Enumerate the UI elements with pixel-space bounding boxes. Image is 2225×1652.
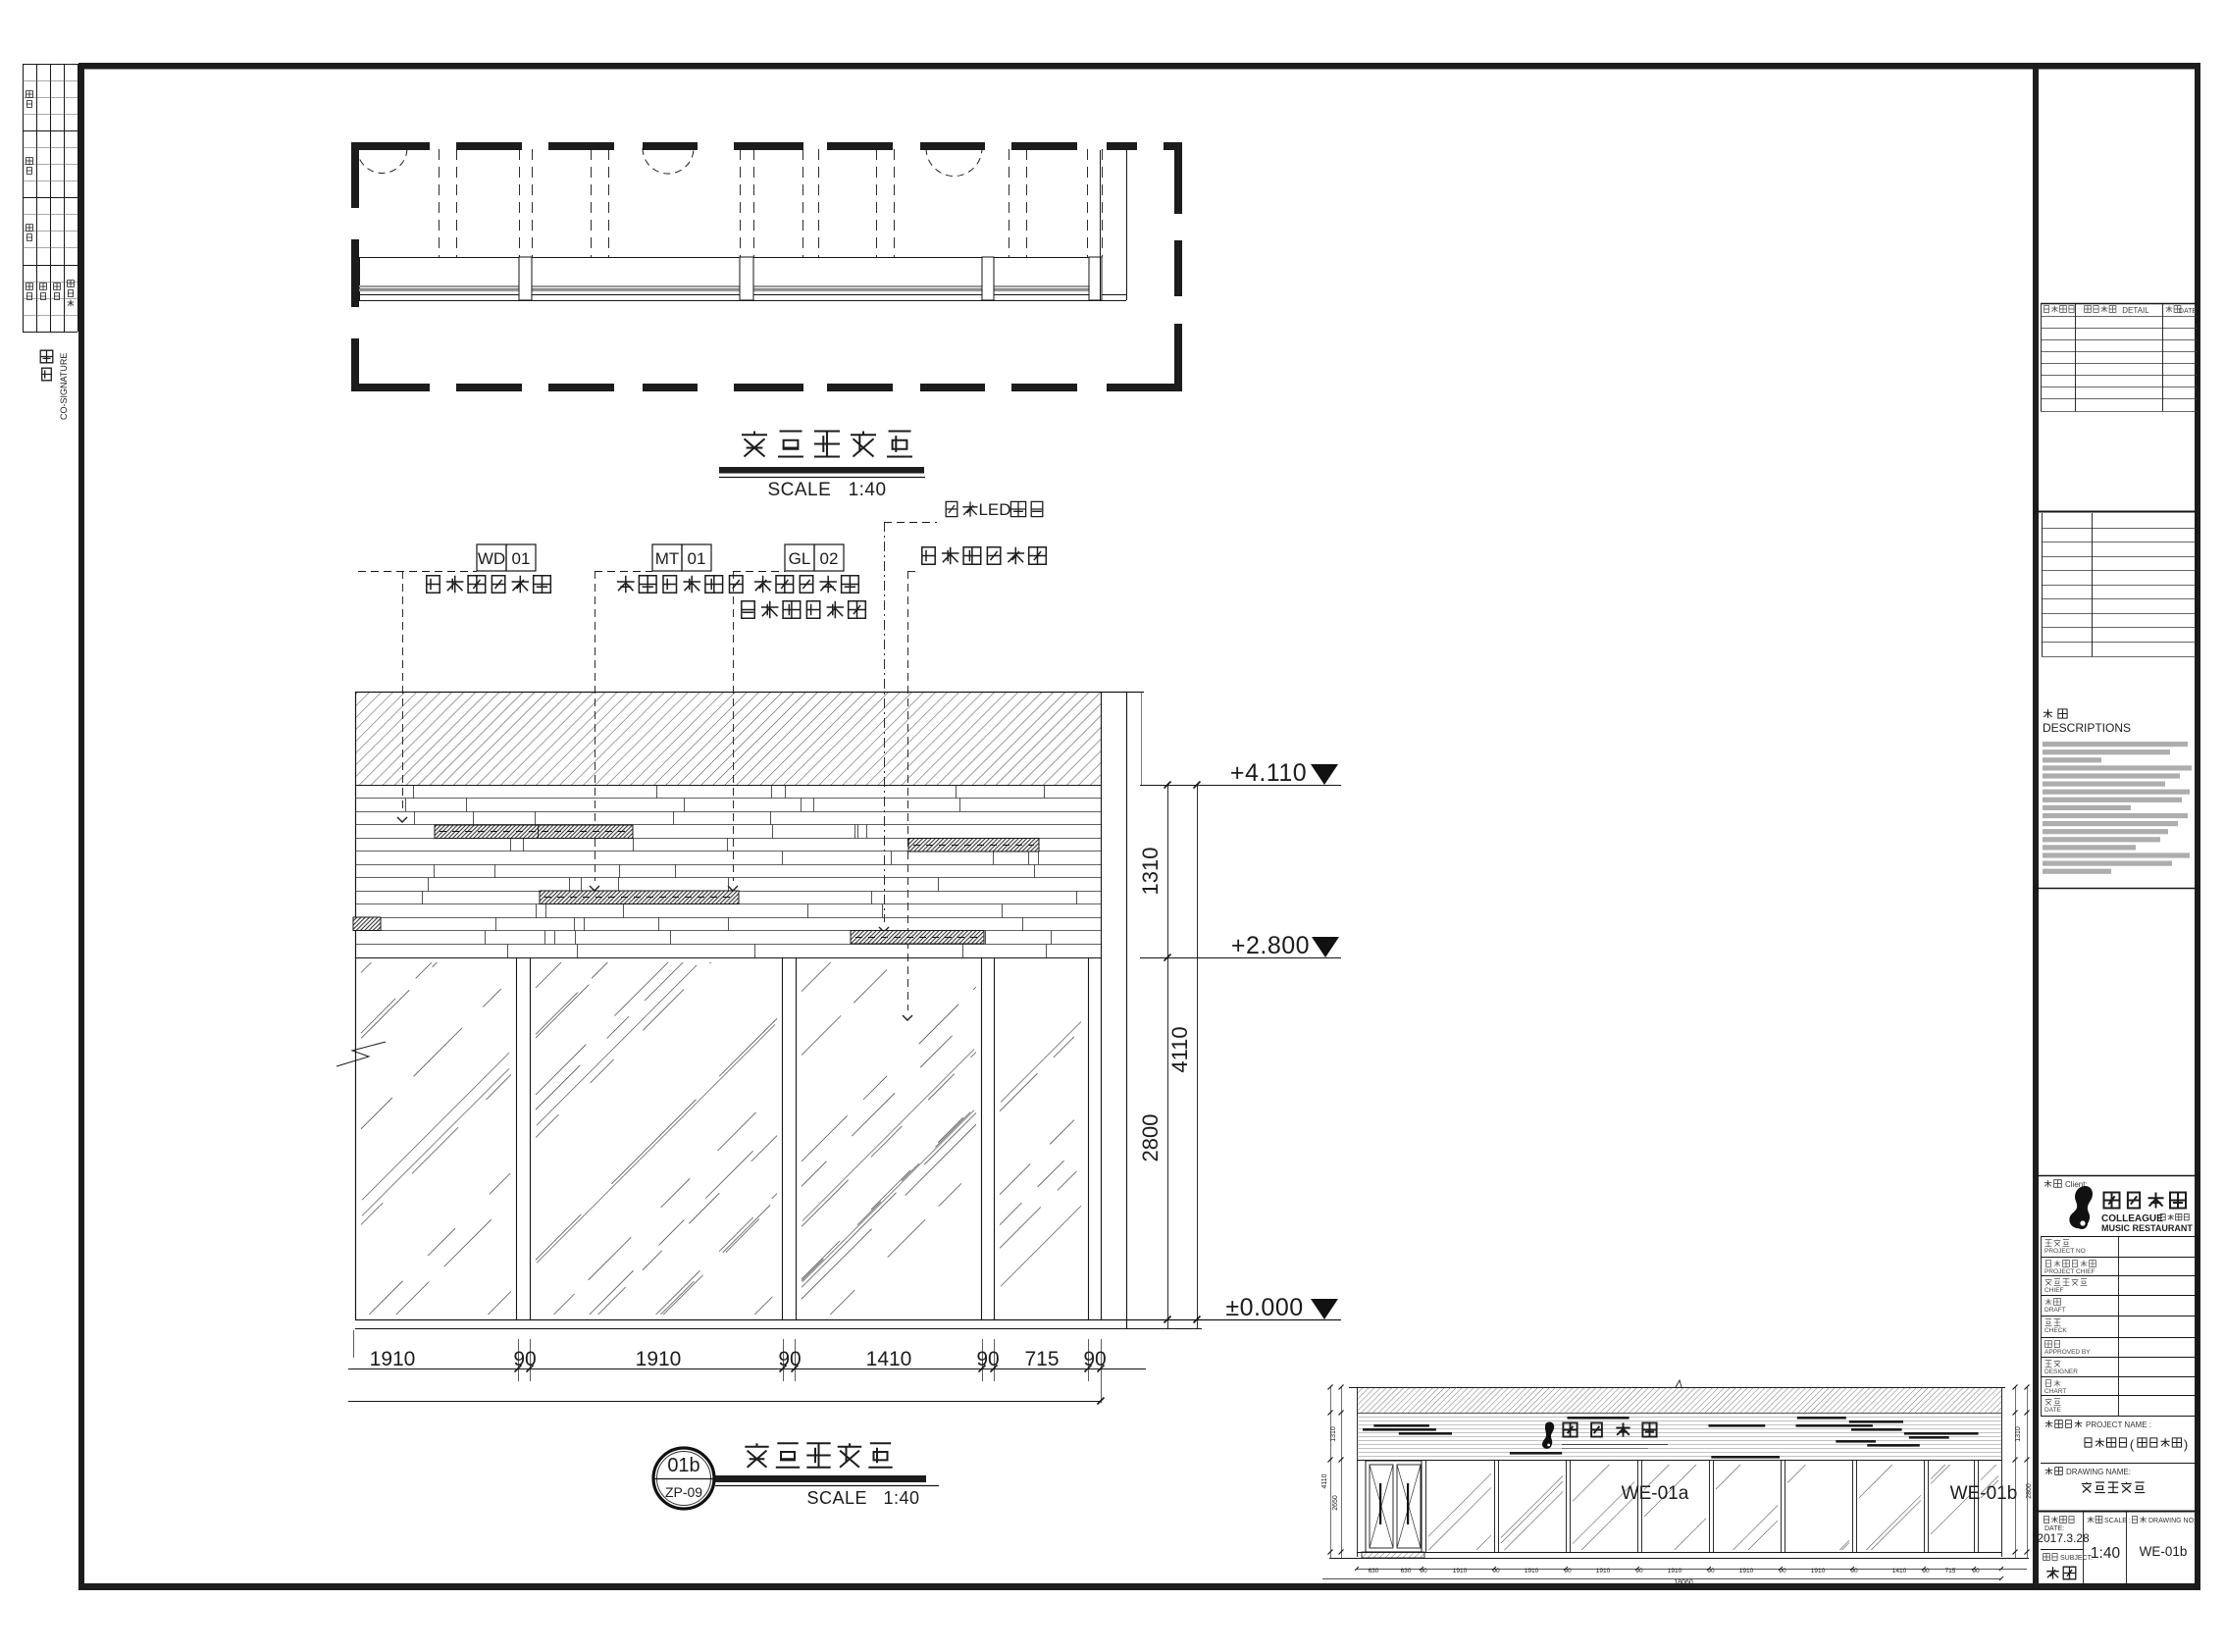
svg-text:90: 90 (976, 1348, 999, 1370)
svg-text:WE-01b: WE-01b (1950, 1483, 2018, 1504)
svg-text:1910: 1910 (1525, 1568, 1539, 1575)
svg-text:DRAFT: DRAFT (2044, 1307, 2066, 1314)
svg-text:2650: 2650 (1332, 1495, 1339, 1511)
svg-text:ZP-09: ZP-09 (665, 1484, 702, 1500)
svg-text:01: 01 (512, 549, 531, 568)
svg-text:1910: 1910 (636, 1348, 682, 1370)
svg-text:01b: 01b (667, 1455, 699, 1476)
svg-text:DATE: DATE (2179, 308, 2197, 315)
svg-text:DRAWING NO:: DRAWING NO: (2148, 1518, 2196, 1524)
svg-text:SCALE :: SCALE : (2104, 1518, 2131, 1524)
svg-text:SUBJECT:: SUBJECT: (2060, 1555, 2093, 1562)
svg-text:CHECK: CHECK (2044, 1327, 2067, 1334)
svg-text:4110: 4110 (1167, 1026, 1192, 1072)
svg-text:1910: 1910 (1811, 1568, 1826, 1575)
svg-text:90: 90 (513, 1348, 536, 1370)
svg-text:90: 90 (1083, 1348, 1106, 1370)
svg-text:2017.3.28: 2017.3.28 (2037, 1531, 2090, 1545)
svg-text:DRAWING NAME:: DRAWING NAME: (2066, 1468, 2131, 1476)
svg-text:±0.000: ±0.000 (1225, 1294, 1303, 1321)
svg-text:90: 90 (1850, 1568, 1858, 1575)
svg-text:1:40: 1:40 (2091, 1545, 2121, 1562)
svg-text:LED: LED (978, 500, 1010, 519)
svg-text:GL: GL (789, 549, 811, 568)
svg-text:90: 90 (1635, 1568, 1643, 1575)
svg-text:WE-01a: WE-01a (1622, 1483, 1689, 1504)
svg-text:1910: 1910 (1739, 1568, 1754, 1575)
svg-text:CO-SIGNATURE: CO-SIGNATURE (59, 353, 69, 420)
svg-text:90: 90 (1707, 1568, 1715, 1575)
svg-text:90: 90 (1420, 1568, 1427, 1575)
svg-text:1910: 1910 (1668, 1568, 1682, 1575)
svg-text:WE-01b: WE-01b (2140, 1544, 2188, 1559)
svg-text:DESCRIPTIONS: DESCRIPTIONS (2043, 721, 2131, 735)
svg-text:+4.110: +4.110 (1230, 759, 1307, 787)
svg-text:1310: 1310 (1330, 1426, 1337, 1442)
svg-text:4110: 4110 (1321, 1473, 1328, 1488)
svg-text:DESIGNER: DESIGNER (2044, 1368, 2078, 1375)
svg-text:715: 715 (1945, 1568, 1956, 1575)
svg-text:WD: WD (478, 549, 505, 568)
svg-text:1910: 1910 (1453, 1568, 1468, 1575)
svg-text:715: 715 (1024, 1348, 1059, 1370)
svg-text:1310: 1310 (2015, 1426, 2022, 1442)
svg-text:1410: 1410 (1892, 1568, 1907, 1575)
svg-text:DETAIL: DETAIL (2122, 306, 2149, 315)
svg-text:1910: 1910 (1596, 1568, 1611, 1575)
svg-text:630: 630 (1369, 1568, 1379, 1575)
svg-text:90: 90 (1922, 1568, 1930, 1575)
svg-text:PROJECT NAME :: PROJECT NAME : (2086, 1420, 2151, 1429)
svg-text:02: 02 (820, 549, 839, 568)
svg-text:1410: 1410 (866, 1348, 912, 1370)
svg-text:(: ( (2130, 1437, 2135, 1452)
svg-text:MUSIC RESTAURANT: MUSIC RESTAURANT (2101, 1223, 2193, 1233)
svg-text:90: 90 (1492, 1568, 1500, 1575)
svg-text:90: 90 (1779, 1568, 1786, 1575)
svg-text:SCALE 1:40: SCALE 1:40 (806, 1488, 919, 1508)
svg-text:DATE: DATE (2044, 1407, 2062, 1414)
svg-text:90: 90 (1972, 1568, 1980, 1575)
svg-text:2800: 2800 (1138, 1114, 1163, 1162)
svg-text:630: 630 (1401, 1568, 1412, 1575)
svg-text:1910: 1910 (370, 1348, 416, 1370)
svg-text:SCALE 1:40: SCALE 1:40 (767, 480, 886, 500)
svg-text:APPROVED BY: APPROVED BY (2044, 1349, 2091, 1356)
svg-text:): ) (2184, 1437, 2188, 1452)
svg-text:01: 01 (688, 549, 706, 568)
svg-text:1310: 1310 (1138, 848, 1163, 896)
svg-text:PROJECT CHIEF: PROJECT CHIEF (2044, 1268, 2096, 1275)
svg-text:CHIEF: CHIEF (2044, 1287, 2064, 1294)
svg-text:90: 90 (1564, 1568, 1572, 1575)
svg-text:MT: MT (655, 549, 680, 568)
svg-text:2800: 2800 (2026, 1483, 2033, 1499)
svg-text:18060: 18060 (1674, 1579, 1693, 1586)
svg-text:+2.800: +2.800 (1231, 932, 1310, 959)
svg-text:PROJECT NO: PROJECT NO (2044, 1248, 2086, 1255)
svg-text:CHART: CHART (2044, 1388, 2066, 1395)
svg-text:90: 90 (778, 1348, 801, 1370)
